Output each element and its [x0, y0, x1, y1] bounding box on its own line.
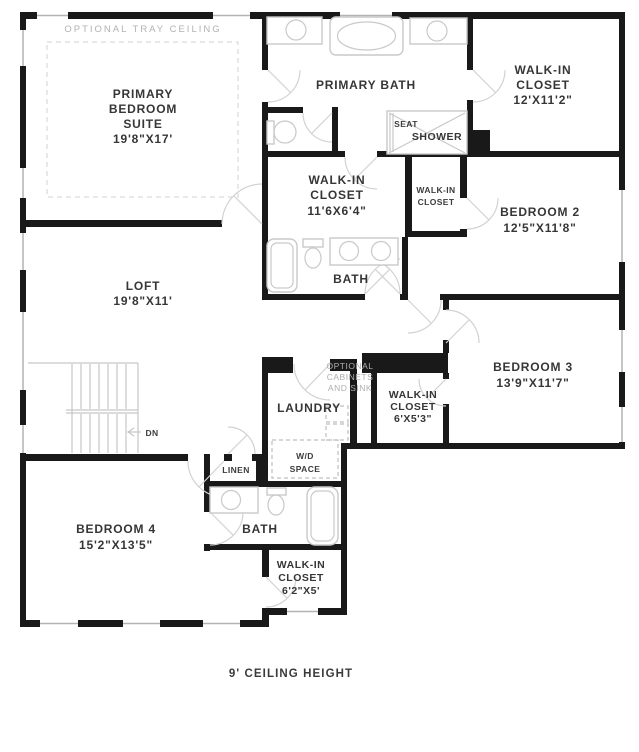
wall-segment [262, 151, 345, 157]
wall-segment [262, 294, 365, 300]
window [20, 30, 26, 66]
door-leaf [408, 300, 431, 323]
wall-segment [405, 231, 467, 237]
wall-segment [332, 107, 338, 151]
wall-segment [400, 294, 408, 300]
wall-segment [20, 198, 26, 233]
window [123, 620, 160, 627]
toilet-tank [303, 239, 323, 247]
room-dimension: 6'2"X5' [282, 585, 320, 597]
wall-segment [341, 443, 347, 615]
toilet-bowl [274, 121, 296, 143]
room-label-linen: LINEN [222, 465, 250, 475]
stairs-down-label: DN [145, 428, 158, 438]
wall-segment [467, 18, 473, 70]
window [20, 312, 26, 390]
optional-cabinet-outline [326, 424, 348, 440]
vanity [410, 18, 467, 44]
optional-cabinets-label: OPTIONAL [327, 361, 374, 371]
toilet-bowl [268, 495, 284, 515]
room-label-walk-in-closet-653: CLOSET [390, 401, 436, 413]
wall-segment [204, 454, 210, 512]
wall-segment [362, 353, 448, 373]
room-label-walk-in-closet-116: WALK-IN [309, 173, 366, 187]
wd-space-label: SPACE [290, 464, 321, 474]
tray-ceiling-label: OPTIONAL TRAY CEILING [64, 24, 221, 35]
seat-label: SEAT [394, 119, 418, 129]
wall-segment [256, 454, 262, 487]
toilet-bowl [305, 248, 321, 268]
window [619, 190, 625, 262]
wall-segment [443, 340, 449, 353]
room-dimension: 6'X5'3" [394, 413, 432, 425]
room-label-loft: LOFT [126, 279, 161, 293]
room-dimension: 19'8"X17' [113, 132, 173, 146]
room-label-walk-in-closet-12: WALK-IN [515, 63, 572, 77]
room-label-bedroom2: BEDROOM 2 [500, 205, 580, 219]
door-leaf [467, 198, 489, 220]
room-label-walk-in-closet-small: CLOSET [418, 197, 455, 207]
wall-segment [341, 443, 625, 449]
room-label-laundry: LAUNDRY [277, 401, 341, 415]
wall-segment [619, 12, 625, 190]
room-label-walk-in-closet-small: WALK-IN [416, 185, 455, 195]
wall-segment [405, 157, 412, 237]
wall-segment [262, 373, 268, 481]
window [20, 425, 26, 453]
wall-segment [443, 300, 449, 310]
vanity [330, 238, 398, 265]
window [287, 608, 318, 615]
door-leaf [311, 113, 332, 134]
window [37, 12, 68, 19]
door-leaf [228, 435, 247, 454]
window [20, 233, 26, 270]
wall-segment [443, 404, 449, 443]
ceiling-height-note: 9' CEILING HEIGHT [229, 668, 353, 680]
wall-segment [20, 390, 26, 425]
wall-segment [262, 357, 293, 373]
window [20, 168, 26, 198]
wall-segment [20, 453, 26, 627]
wall-segment [20, 220, 222, 227]
door-leaf [268, 70, 291, 93]
room-label-bedroom3: BEDROOM 3 [493, 360, 573, 374]
room-label-primary-suite: SUITE [123, 117, 162, 131]
window [40, 620, 78, 627]
wall-segment [20, 66, 26, 168]
optional-cabinets-label: CABINETS [327, 372, 374, 382]
room-label-primary-suite: BEDROOM [109, 102, 177, 116]
wall-segment [262, 608, 269, 627]
wall-segment [460, 157, 467, 198]
room-label-walk-in-closet-12: CLOSET [516, 78, 569, 92]
wall-segment [402, 237, 408, 300]
optional-cabinets-label: AND SINK [328, 383, 372, 393]
room-label-walk-in-closet-625: WALK-IN [277, 559, 325, 571]
door-leaf [210, 512, 233, 535]
door-leaf [375, 269, 400, 294]
wall-segment [443, 373, 449, 379]
wall-segment [20, 620, 40, 627]
room-label-walk-in-closet-116: CLOSET [310, 188, 363, 202]
shower-label: SHOWER [412, 131, 462, 143]
wall-segment [20, 270, 26, 312]
room-label-bath-bottom: BATH [242, 522, 278, 536]
wall-segment [440, 294, 625, 300]
room-label-bath-middle: BATH [333, 272, 369, 286]
toilet-tank [267, 121, 274, 144]
floor-plan-page: OPTIONAL TRAY CEILING PRIMARY BEDROOM SU… [0, 0, 639, 752]
wall-segment [262, 107, 303, 113]
wall-segment [262, 550, 269, 577]
window [619, 330, 625, 372]
window [203, 620, 240, 627]
room-dimension: 12'5"X11'8" [503, 221, 576, 235]
room-dimension: 12'X11'2" [513, 93, 572, 107]
door-leaf [473, 70, 496, 93]
stairs [28, 363, 141, 453]
floor-plan-drawing: OPTIONAL TRAY CEILING PRIMARY BEDROOM SU… [0, 0, 639, 752]
wall-segment [20, 454, 188, 461]
room-dimension: 15'2"X13'5" [79, 538, 153, 552]
room-label-primary-bath: PRIMARY BATH [316, 78, 416, 92]
window [619, 407, 625, 442]
room-label-walk-in-closet-653: WALK-IN [389, 389, 437, 401]
toilet-tank [267, 488, 286, 495]
wall-segment [204, 481, 347, 487]
room-label-bedroom4: BEDROOM 4 [76, 522, 156, 536]
room-label-walk-in-closet-625: CLOSET [278, 572, 324, 584]
wall-segment [68, 12, 213, 19]
room-dimension: 19'8"X11' [113, 294, 172, 308]
wall-segment [160, 620, 203, 627]
room-label-primary-suite: PRIMARY [113, 87, 174, 101]
wall-chase [465, 130, 490, 153]
door-leaf [234, 196, 262, 224]
room-dimension: 11'6X6'4" [307, 204, 366, 218]
wall-segment [78, 620, 123, 627]
wd-space-label: W/D [296, 451, 314, 461]
wall-segment [20, 12, 26, 30]
wall-segment [619, 372, 625, 407]
window [213, 12, 250, 19]
door-leaf [446, 320, 469, 343]
room-dimension: 13'9"X11'7" [496, 376, 569, 390]
wall-segment [224, 454, 232, 461]
bathtub [330, 17, 403, 55]
